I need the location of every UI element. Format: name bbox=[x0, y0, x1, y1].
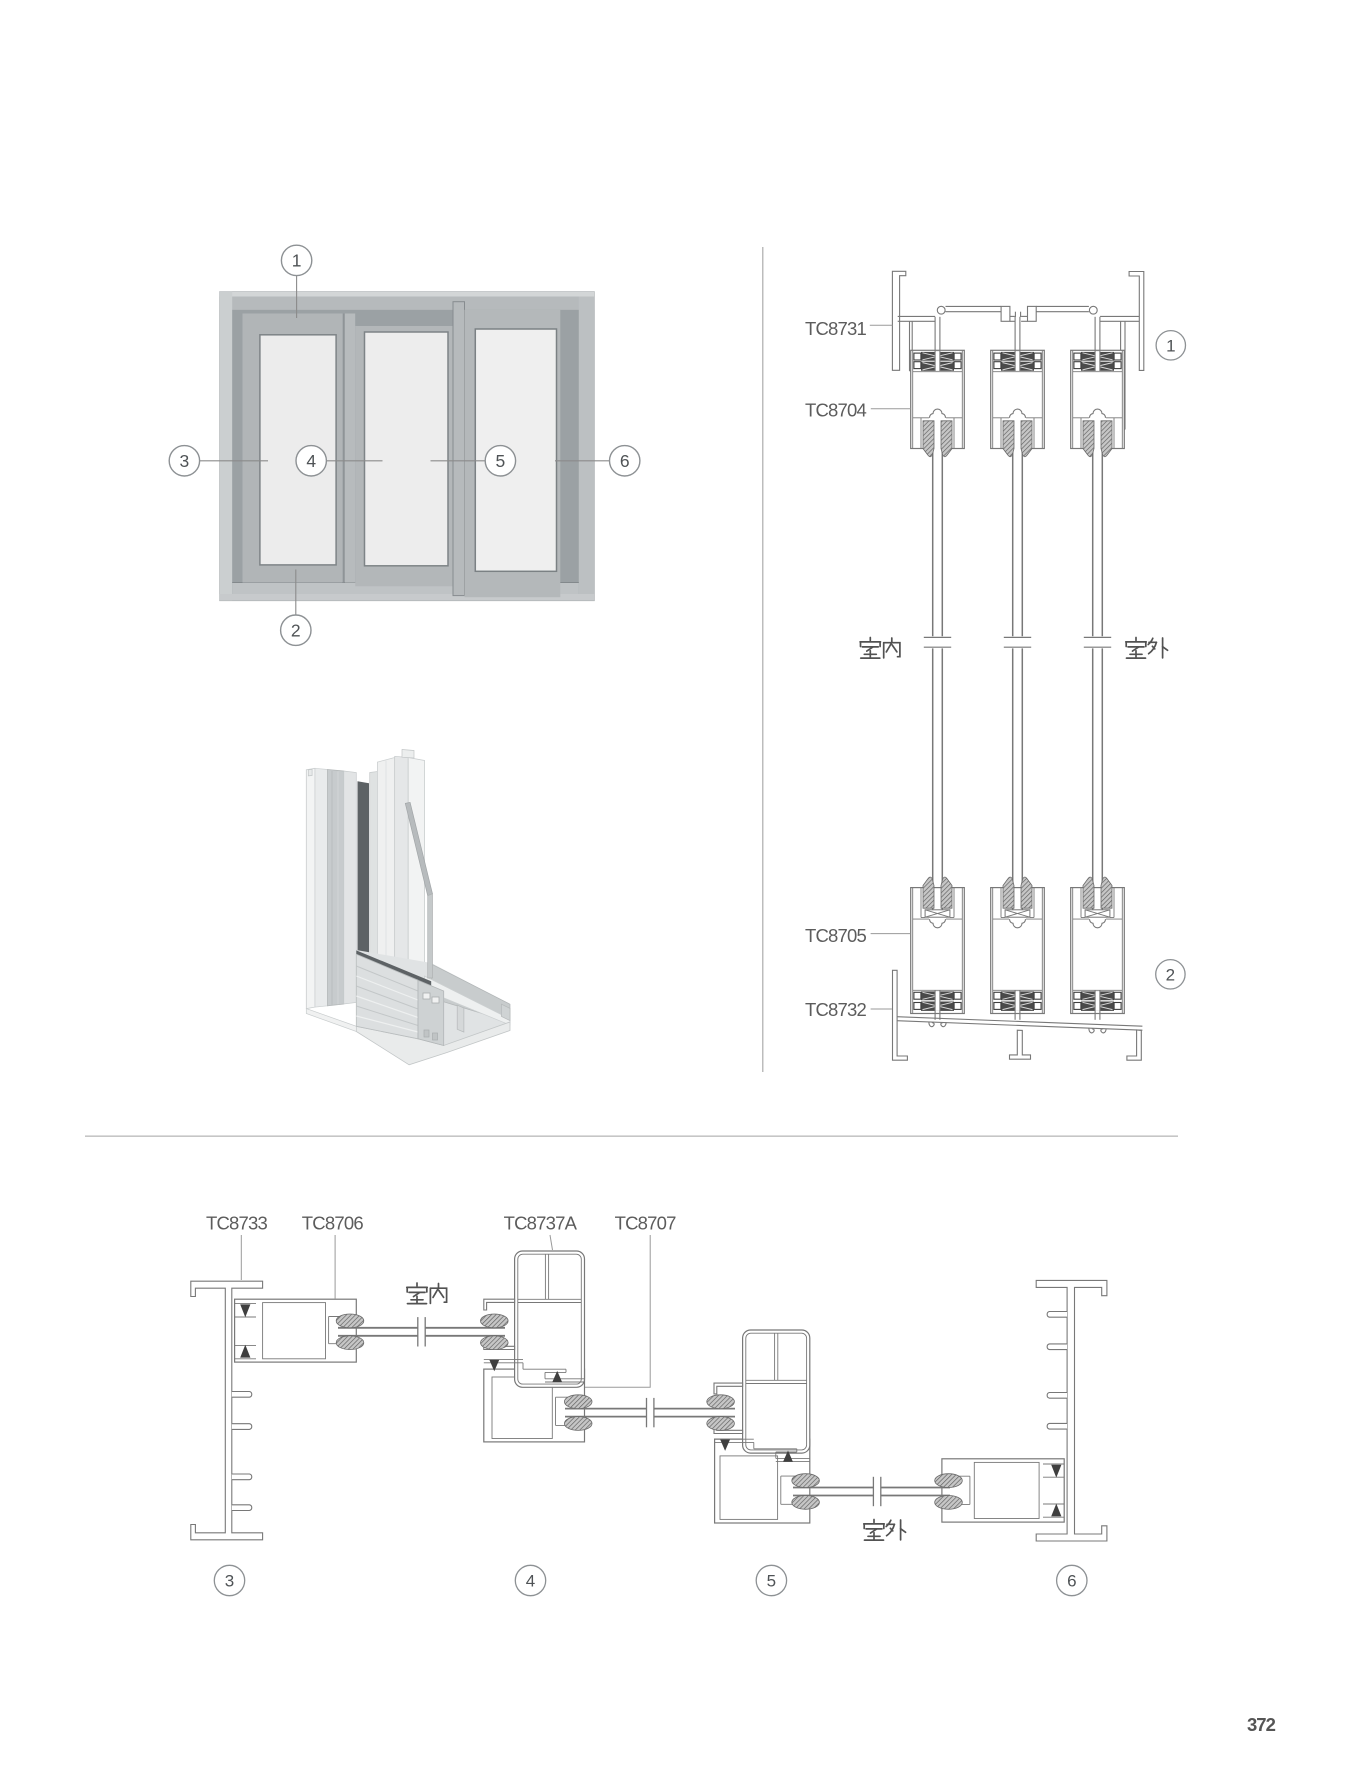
svg-text:TC8733: TC8733 bbox=[206, 1213, 268, 1234]
svg-text:TC8705: TC8705 bbox=[805, 925, 867, 946]
svg-text:5: 5 bbox=[496, 451, 506, 471]
svg-text:TC8707: TC8707 bbox=[615, 1213, 677, 1234]
svg-text:TC8732: TC8732 bbox=[805, 999, 867, 1020]
svg-text:4: 4 bbox=[526, 1572, 535, 1591]
svg-text:2: 2 bbox=[291, 620, 301, 640]
svg-text:5: 5 bbox=[767, 1572, 776, 1591]
svg-text:TC8704: TC8704 bbox=[805, 399, 867, 420]
svg-text:6: 6 bbox=[1067, 1572, 1076, 1591]
svg-text:1: 1 bbox=[292, 251, 302, 271]
svg-text:TC8706: TC8706 bbox=[302, 1213, 364, 1234]
svg-text:372: 372 bbox=[1247, 1714, 1276, 1735]
svg-text:TC8737A: TC8737A bbox=[504, 1213, 578, 1234]
svg-text:TC8731: TC8731 bbox=[805, 318, 867, 339]
svg-text:1: 1 bbox=[1166, 336, 1175, 355]
svg-text:2: 2 bbox=[1166, 965, 1175, 984]
svg-text:4: 4 bbox=[306, 451, 316, 471]
svg-text:3: 3 bbox=[180, 451, 190, 471]
svg-text:3: 3 bbox=[225, 1572, 234, 1591]
svg-text:6: 6 bbox=[620, 451, 630, 471]
